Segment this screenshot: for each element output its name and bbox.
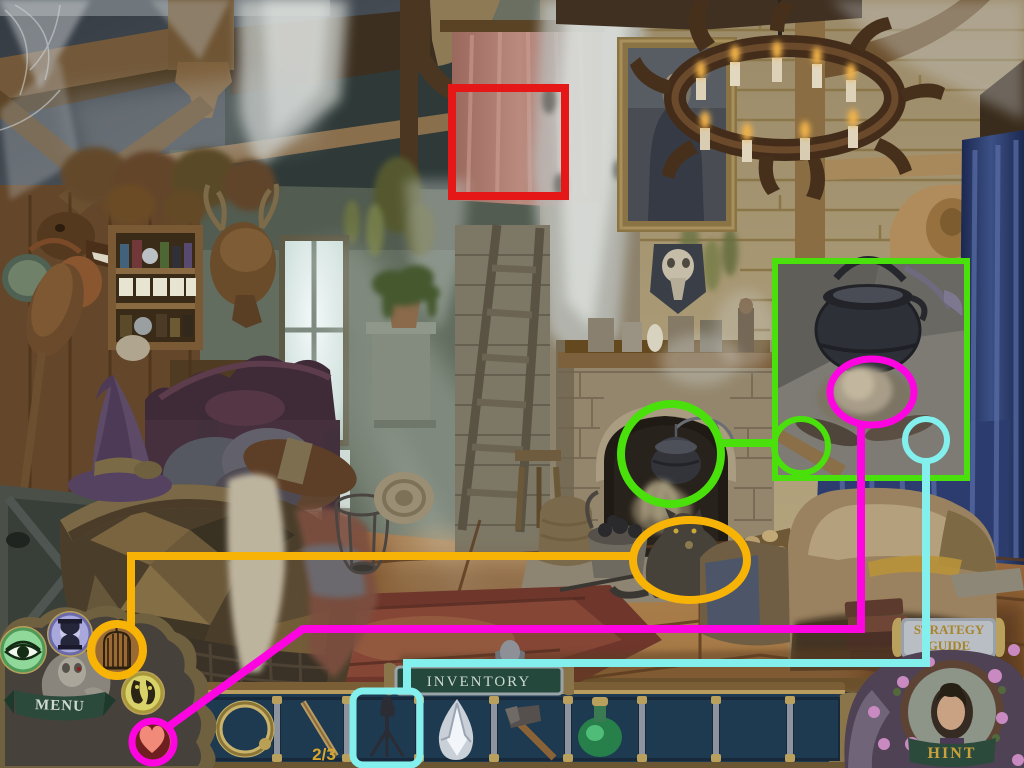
svg-text:HINT: HINT bbox=[928, 745, 977, 762]
svg-text:INVENTORY: INVENTORY bbox=[427, 674, 531, 690]
svg-text:2/3: 2/3 bbox=[312, 745, 336, 764]
svg-text:MENU: MENU bbox=[35, 697, 85, 715]
